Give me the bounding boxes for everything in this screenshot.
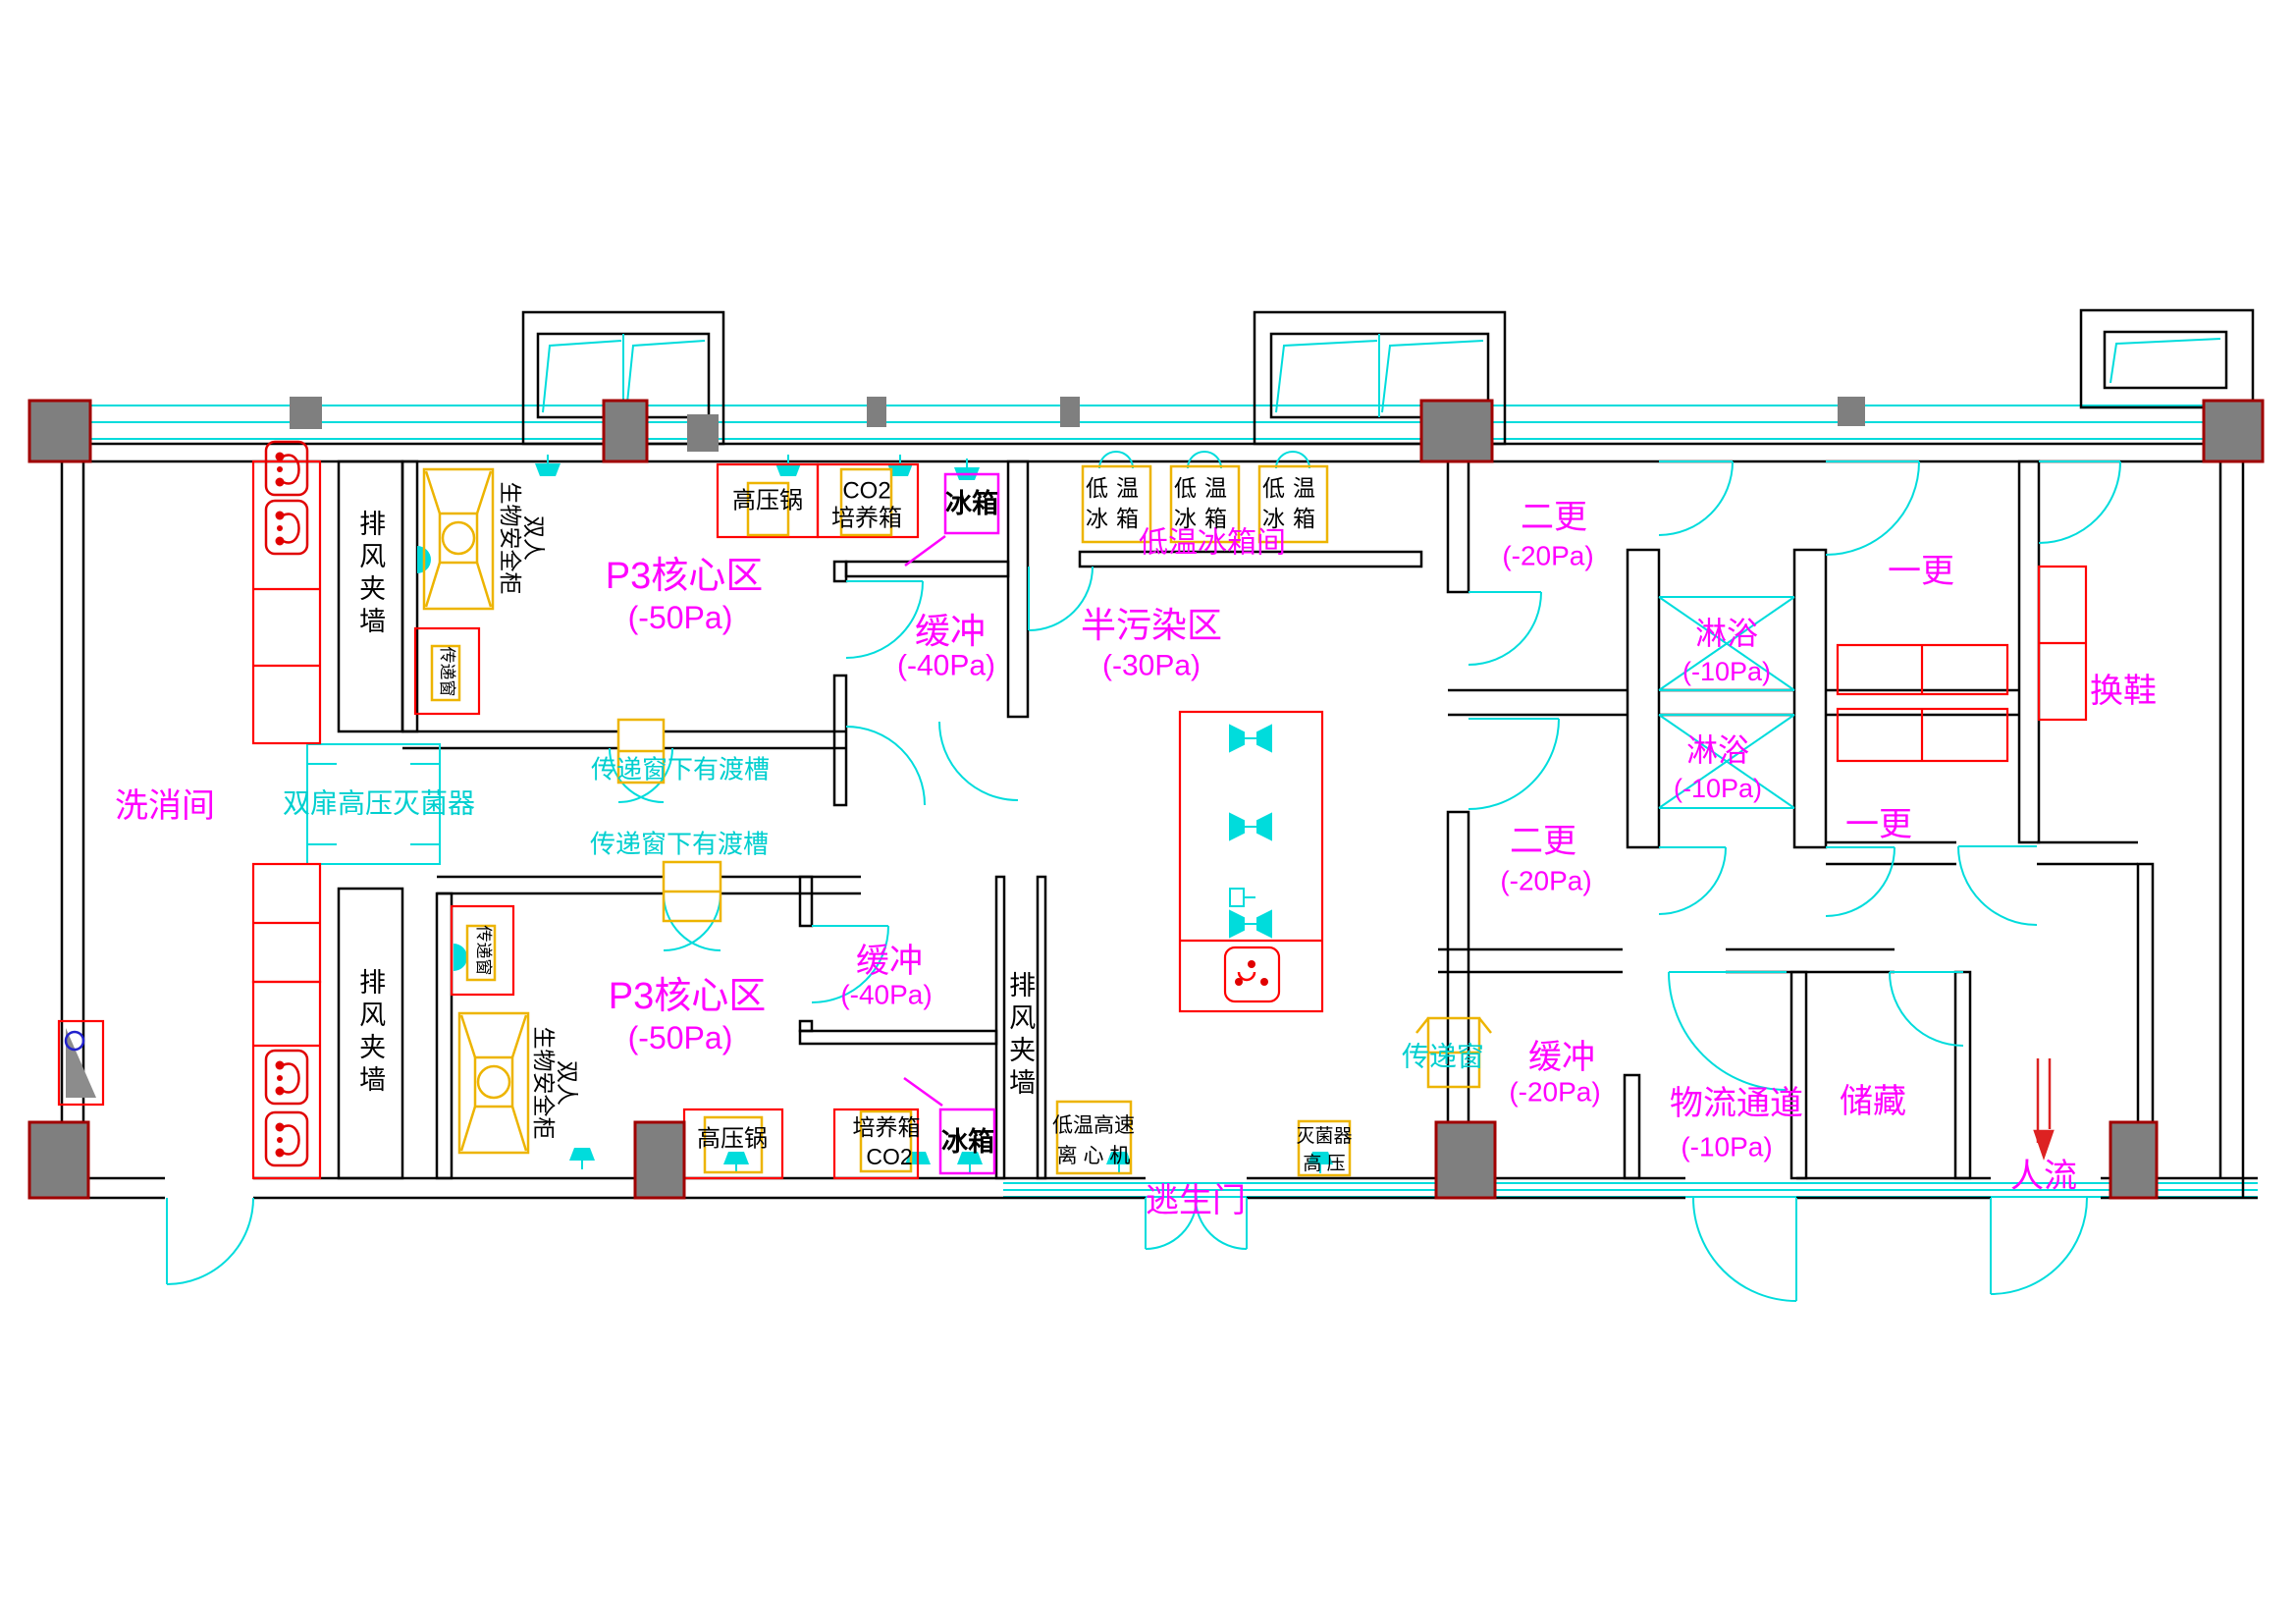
pressure-label-second-change-lower: (-20Pa) bbox=[1500, 866, 1591, 894]
pressure-label-logistics: (-10Pa) bbox=[1681, 1132, 1772, 1161]
exhaust-plenum-label-center: 排风夹墙 bbox=[1006, 971, 1034, 1101]
room-label-buffer-lower: 缓冲 bbox=[856, 945, 923, 980]
room-label-freezer-room: 低温冰箱间 bbox=[1139, 527, 1286, 559]
biosafety-cabinet-label-lower: 双人 生物安全柜 bbox=[532, 1027, 579, 1140]
lt-fridge1-line1: 低温 bbox=[1086, 476, 1147, 500]
co2-incubator-line1-upper: CO2 bbox=[842, 478, 890, 503]
incubator-line1-lower: 培养箱 bbox=[853, 1115, 921, 1139]
pressure-label-shower-upper: (-10Pa) bbox=[1682, 658, 1771, 685]
sterilizer-line1: 灭菌器 bbox=[1296, 1127, 1352, 1147]
room-label-p3-core-upper: P3核心区 bbox=[606, 558, 763, 597]
autoclave-double-door-label: 双扉高压灭菌器 bbox=[283, 788, 475, 817]
lt-fridge1-line2: 冰箱 bbox=[1086, 507, 1147, 530]
pressure-label-p3-core-lower: (-50Pa) bbox=[628, 1022, 733, 1055]
room-label-second-change-upper: 二更 bbox=[1521, 501, 1587, 536]
bsc-lower-line2: 生物安全柜 bbox=[531, 1027, 557, 1140]
lt-fridge2-line1: 低温 bbox=[1174, 476, 1235, 500]
exhaust-plenum-label-lower-left: 排风夹墙 bbox=[356, 968, 384, 1098]
centrifuge-line2: 离 心 机 bbox=[1057, 1146, 1131, 1167]
bsc-upper-line2: 生物安全柜 bbox=[498, 482, 523, 595]
escape-door-label: 逃生门 bbox=[1146, 1184, 1246, 1219]
room-label-buffer-right: 缓冲 bbox=[1528, 1041, 1595, 1076]
fridge-label-lower: 冰箱 bbox=[941, 1128, 994, 1156]
floor-plan: 洗消间 P3核心区 (-50Pa) P3核心区 (-50Pa) 缓冲 (-40P… bbox=[0, 0, 2296, 1622]
room-label-first-change-upper: 一更 bbox=[1888, 555, 1954, 590]
fridges bbox=[904, 474, 998, 1173]
window-bays bbox=[523, 310, 2253, 444]
room-label-second-change-lower: 二更 bbox=[1510, 825, 1576, 860]
pass-window-label-right: 传递窗 bbox=[1402, 1042, 1484, 1070]
pressure-label-p3-core-upper: (-50Pa) bbox=[628, 602, 733, 635]
people-flow-label: 人流 bbox=[2010, 1160, 2077, 1195]
lt-fridge3-line2: 冰箱 bbox=[1262, 507, 1323, 530]
pressure-label-buffer-upper: (-40Pa) bbox=[897, 650, 995, 681]
incubator-line2-lower: CO2 bbox=[866, 1145, 912, 1168]
fridge-label-upper: 冰箱 bbox=[945, 490, 998, 517]
pressure-label-buffer-right: (-20Pa) bbox=[1509, 1077, 1600, 1106]
yellow-equipment bbox=[424, 466, 1491, 1175]
room-label-shoe-change: 换鞋 bbox=[2090, 675, 2157, 710]
pass-window-trough-note-upper: 传递窗下有渡槽 bbox=[591, 756, 770, 783]
room-label-wash: 洗消间 bbox=[115, 789, 215, 825]
room-label-shower-upper: 淋浴 bbox=[1695, 618, 1758, 651]
room-label-logistics: 物流通道 bbox=[1670, 1087, 1803, 1122]
room-label-storage: 储藏 bbox=[1840, 1085, 1906, 1120]
pass-window-trough-note-lower: 传递窗下有渡槽 bbox=[590, 831, 769, 857]
autoclave-pot-label-lower: 高压锅 bbox=[697, 1126, 768, 1151]
pressure-label-semi-contaminated: (-30Pa) bbox=[1102, 650, 1201, 681]
pressure-label-second-change-upper: (-20Pa) bbox=[1502, 541, 1593, 569]
exhaust-plenum-label-upper-left: 排风夹墙 bbox=[356, 510, 384, 639]
sterilizer-line2: 高 压 bbox=[1303, 1155, 1345, 1174]
biosafety-cabinet-label-upper: 双人 生物安全柜 bbox=[499, 482, 546, 595]
lt-fridge3-line1: 低温 bbox=[1262, 476, 1323, 500]
lt-fridge2-line2: 冰箱 bbox=[1174, 507, 1235, 530]
pressure-label-buffer-lower: (-40Pa) bbox=[840, 980, 932, 1008]
centrifuge-line1: 低温高速 bbox=[1052, 1115, 1135, 1137]
people-flow-arrow bbox=[2035, 1058, 2053, 1157]
co2-incubator-line2-upper: 培养箱 bbox=[831, 506, 902, 530]
pass-window-label-upper-lab: 传递窗 bbox=[438, 647, 455, 697]
bsc-lower-line1: 双人 bbox=[555, 1060, 580, 1106]
room-label-p3-core-lower: P3核心区 bbox=[609, 978, 766, 1017]
pressure-label-shower-lower: (-10Pa) bbox=[1674, 775, 1762, 802]
room-label-buffer-upper: 缓冲 bbox=[915, 613, 986, 650]
room-label-shower-lower: 淋浴 bbox=[1686, 734, 1749, 768]
autoclave-pot-label-upper: 高压锅 bbox=[732, 488, 803, 513]
pass-window-label-lower-lab: 传递窗 bbox=[474, 926, 492, 976]
room-label-semi-contaminated: 半污染区 bbox=[1081, 607, 1222, 644]
room-label-first-change-lower: 一更 bbox=[1845, 808, 1912, 843]
bsc-upper-line1: 双人 bbox=[521, 515, 547, 561]
